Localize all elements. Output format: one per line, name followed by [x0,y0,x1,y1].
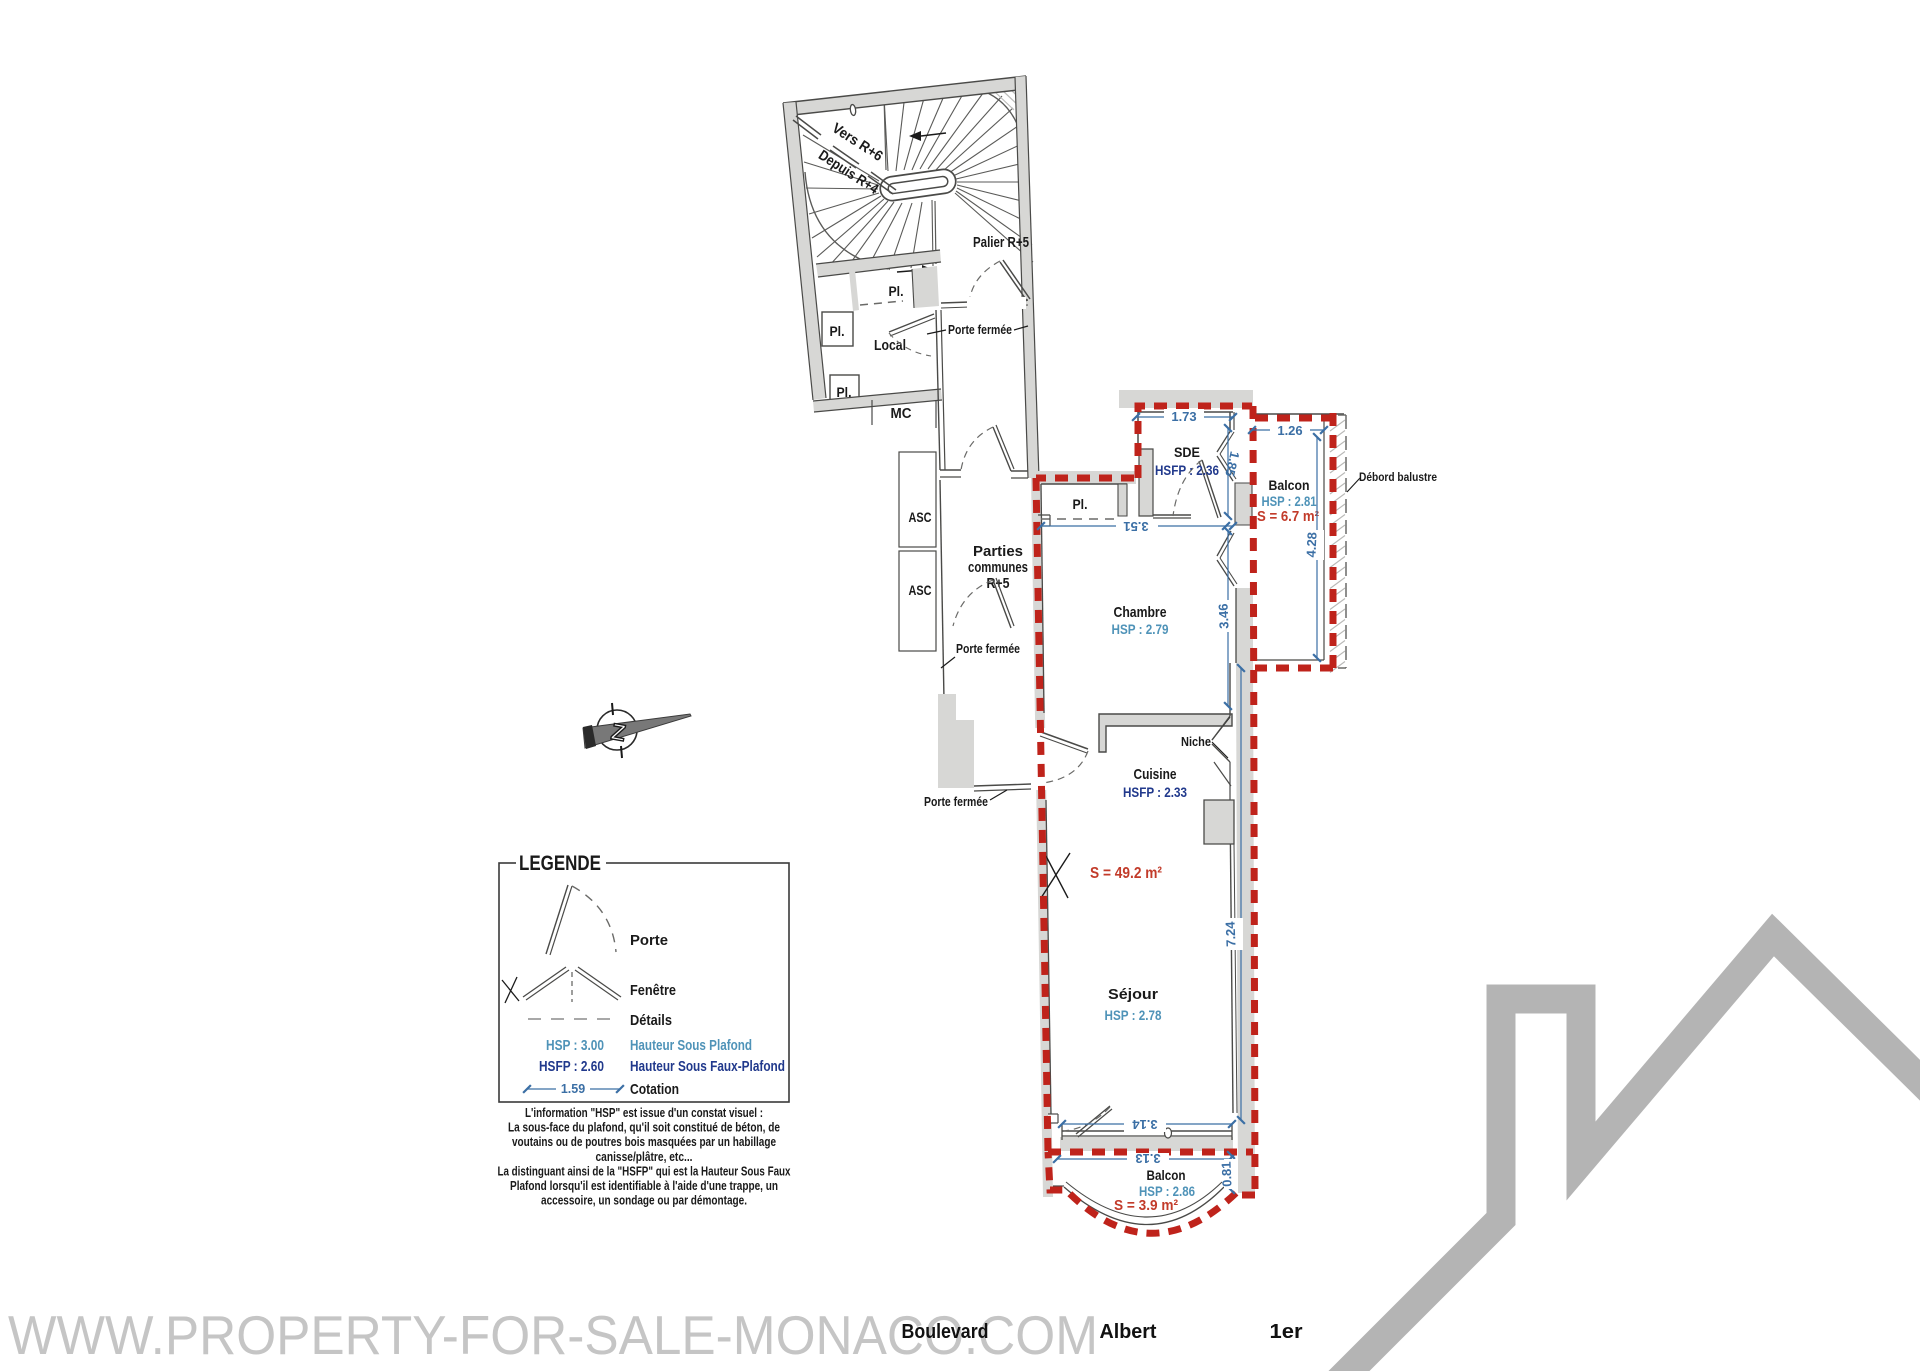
svg-text:LEGENDE: LEGENDE [519,852,601,875]
svg-text:Porte fermée: Porte fermée [948,322,1012,337]
svg-text:7.24: 7.24 [1223,920,1239,947]
svg-text:Porte fermée: Porte fermée [924,794,988,809]
svg-text:S = 49.2 m²: S = 49.2 m² [1090,865,1162,882]
svg-text:1er: 1er [1270,1321,1303,1343]
svg-text:HSP : 3.00: HSP : 3.00 [546,1038,604,1054]
svg-text:1.73: 1.73 [1171,409,1196,424]
svg-text:Fenêtre: Fenêtre [630,982,676,999]
svg-text:communes: communes [968,560,1028,576]
svg-text:0.81: 0.81 [1219,1161,1235,1187]
svg-text:Cuisine: Cuisine [1134,766,1177,783]
svg-text:3.46: 3.46 [1216,603,1232,629]
svg-text:Balcon: Balcon [1269,477,1310,493]
svg-text:Albert: Albert [1100,1321,1157,1343]
svg-text:HSP : 2.79: HSP : 2.79 [1112,621,1169,637]
svg-text:3.14: 3.14 [1132,1117,1158,1132]
svg-text:canisse/plâtre, etc...: canisse/plâtre, etc... [596,1149,693,1164]
svg-text:Boulevard: Boulevard [902,1321,989,1343]
svg-text:1.59: 1.59 [561,1082,585,1096]
svg-text:ASC: ASC [909,509,932,525]
svg-text:Cotation: Cotation [630,1081,679,1098]
svg-text:Débord balustre: Débord balustre [1359,472,1437,484]
svg-text:HSP : 2.78: HSP : 2.78 [1105,1007,1162,1023]
svg-text:3.13: 3.13 [1135,1151,1160,1166]
svg-text:Balcon: Balcon [1147,1167,1186,1183]
svg-text:SDE: SDE [1174,444,1200,460]
svg-text:HSP : 2.81: HSP : 2.81 [1262,493,1317,509]
svg-text:Local: Local [874,338,906,354]
svg-text:voutains ou de poutres bois ma: voutains ou de poutres bois masquées par… [512,1134,776,1149]
svg-text:Z: Z [609,718,627,746]
svg-text:1.85: 1.85 [1222,450,1242,478]
svg-text:ASC: ASC [909,582,932,598]
svg-text:4.28: 4.28 [1303,532,1319,558]
svg-text:S = 3.9 m²: S = 3.9 m² [1114,1197,1178,1214]
svg-text:La distinguant ainsi de la "HS: La distinguant ainsi de la "HSFP" qui es… [498,1163,792,1178]
svg-text:La sous-face du plafond, qu'il: La sous-face du plafond, qu'il soit cons… [508,1120,780,1135]
svg-text:Chambre: Chambre [1114,604,1167,621]
svg-text:Hauteur Sous Faux-Plafond: Hauteur Sous Faux-Plafond [630,1059,785,1075]
svg-text:Pl.: Pl. [830,324,845,339]
svg-text:Hauteur Sous Plafond: Hauteur Sous Plafond [630,1038,752,1054]
svg-text:L'information "HSP" est issue: L'information "HSP" est issue d'un const… [525,1105,763,1120]
svg-text:Pl.: Pl. [1073,496,1088,512]
svg-text:accessoire, un sondage ou par: accessoire, un sondage ou par démontage. [541,1193,747,1208]
svg-text:HSFP : 2.36: HSFP : 2.36 [1155,462,1219,478]
svg-text:Porte: Porte [630,932,668,949]
svg-text:Pl.: Pl. [889,284,904,299]
svg-text:Porte fermée: Porte fermée [956,641,1020,656]
svg-text:HSFP : 2.33: HSFP : 2.33 [1123,784,1187,800]
svg-text:1.26: 1.26 [1277,423,1302,438]
svg-text:Détails: Détails [630,1012,672,1029]
svg-text:Plafond lorsqu'il est identifi: Plafond lorsqu'il est identifiable à l'a… [510,1178,778,1193]
svg-text:HSFP : 2.60: HSFP : 2.60 [539,1059,604,1075]
svg-text:Palier R+5: Palier R+5 [973,235,1029,251]
svg-text:MC: MC [891,406,912,422]
svg-text:3.51: 3.51 [1123,519,1148,534]
svg-text:Parties: Parties [973,544,1023,560]
svg-text:Séjour: Séjour [1108,986,1158,1003]
svg-text:S = 6.7 m²: S = 6.7 m² [1257,509,1319,525]
svg-text:Niche: Niche [1181,735,1211,749]
